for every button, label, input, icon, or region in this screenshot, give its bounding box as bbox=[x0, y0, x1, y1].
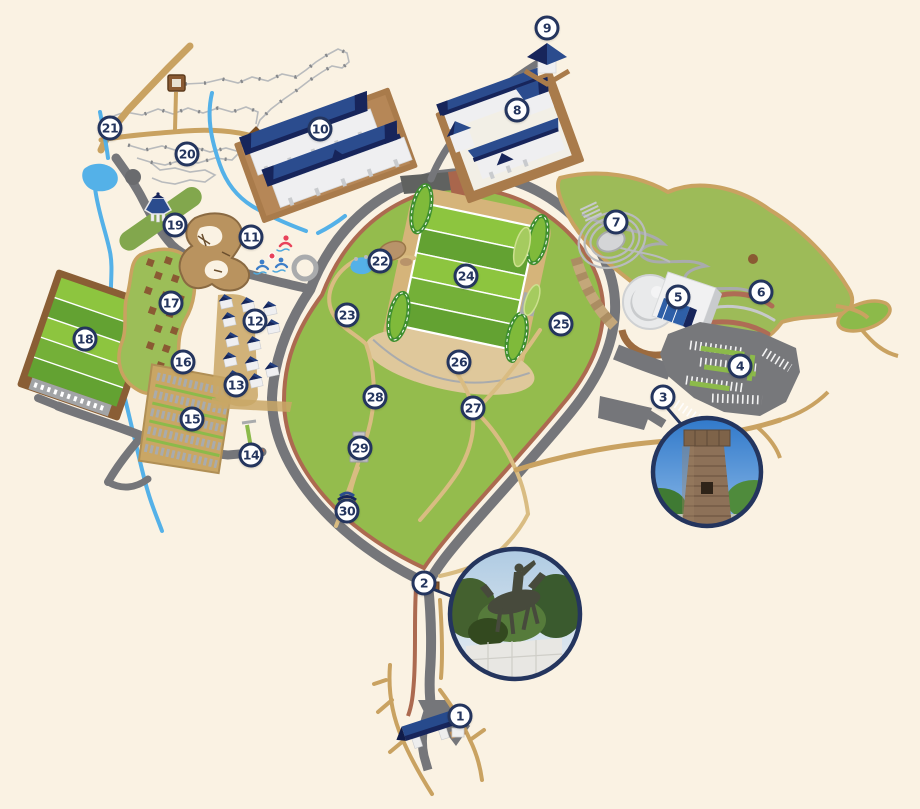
map-marker-18[interactable]: 18 bbox=[73, 327, 98, 352]
map-marker-13[interactable]: 13 bbox=[224, 373, 249, 398]
fountain-icon bbox=[294, 257, 316, 279]
strip-cap-14 bbox=[242, 421, 256, 423]
map-marker-6[interactable]: 6 bbox=[749, 280, 774, 305]
map-marker-17[interactable]: 17 bbox=[159, 291, 184, 316]
map-marker-12[interactable]: 12 bbox=[243, 309, 268, 334]
map-marker-27[interactable]: 27 bbox=[461, 396, 486, 421]
map-marker-15[interactable]: 15 bbox=[180, 407, 205, 432]
map-marker-24[interactable]: 24 bbox=[454, 264, 479, 289]
map-marker-14[interactable]: 14 bbox=[239, 443, 264, 468]
trail-hut-icon bbox=[168, 75, 185, 91]
map-marker-28[interactable]: 28 bbox=[363, 385, 388, 410]
map-marker-21[interactable]: 21 bbox=[98, 116, 123, 141]
map-marker-2[interactable]: 2 bbox=[412, 571, 437, 596]
map-marker-7[interactable]: 7 bbox=[604, 210, 629, 235]
stone-observatory-photo bbox=[620, 415, 782, 532]
map-marker-23[interactable]: 23 bbox=[335, 303, 360, 328]
park-map: 1234567891011121314151617181920212223242… bbox=[0, 0, 920, 809]
map-marker-29[interactable]: 29 bbox=[348, 436, 373, 461]
map-marker-1[interactable]: 1 bbox=[448, 704, 473, 729]
map-marker-9[interactable]: 9 bbox=[535, 16, 560, 41]
map-marker-26[interactable]: 26 bbox=[447, 350, 472, 375]
map-marker-22[interactable]: 22 bbox=[368, 249, 393, 274]
map-marker-11[interactable]: 11 bbox=[239, 225, 264, 250]
map-marker-19[interactable]: 19 bbox=[163, 213, 188, 238]
map-marker-3[interactable]: 3 bbox=[651, 385, 676, 410]
map-marker-5[interactable]: 5 bbox=[666, 285, 691, 310]
map-marker-4[interactable]: 4 bbox=[728, 354, 753, 379]
map-marker-25[interactable]: 25 bbox=[549, 312, 574, 337]
map-marker-20[interactable]: 20 bbox=[175, 142, 200, 167]
playground bbox=[180, 213, 249, 290]
map-marker-30[interactable]: 30 bbox=[335, 499, 360, 524]
pond bbox=[82, 164, 118, 192]
hanok-complex-10 bbox=[232, 83, 417, 223]
map-marker-16[interactable]: 16 bbox=[171, 350, 196, 375]
map-marker-8[interactable]: 8 bbox=[505, 98, 530, 123]
map-marker-10[interactable]: 10 bbox=[308, 117, 333, 142]
